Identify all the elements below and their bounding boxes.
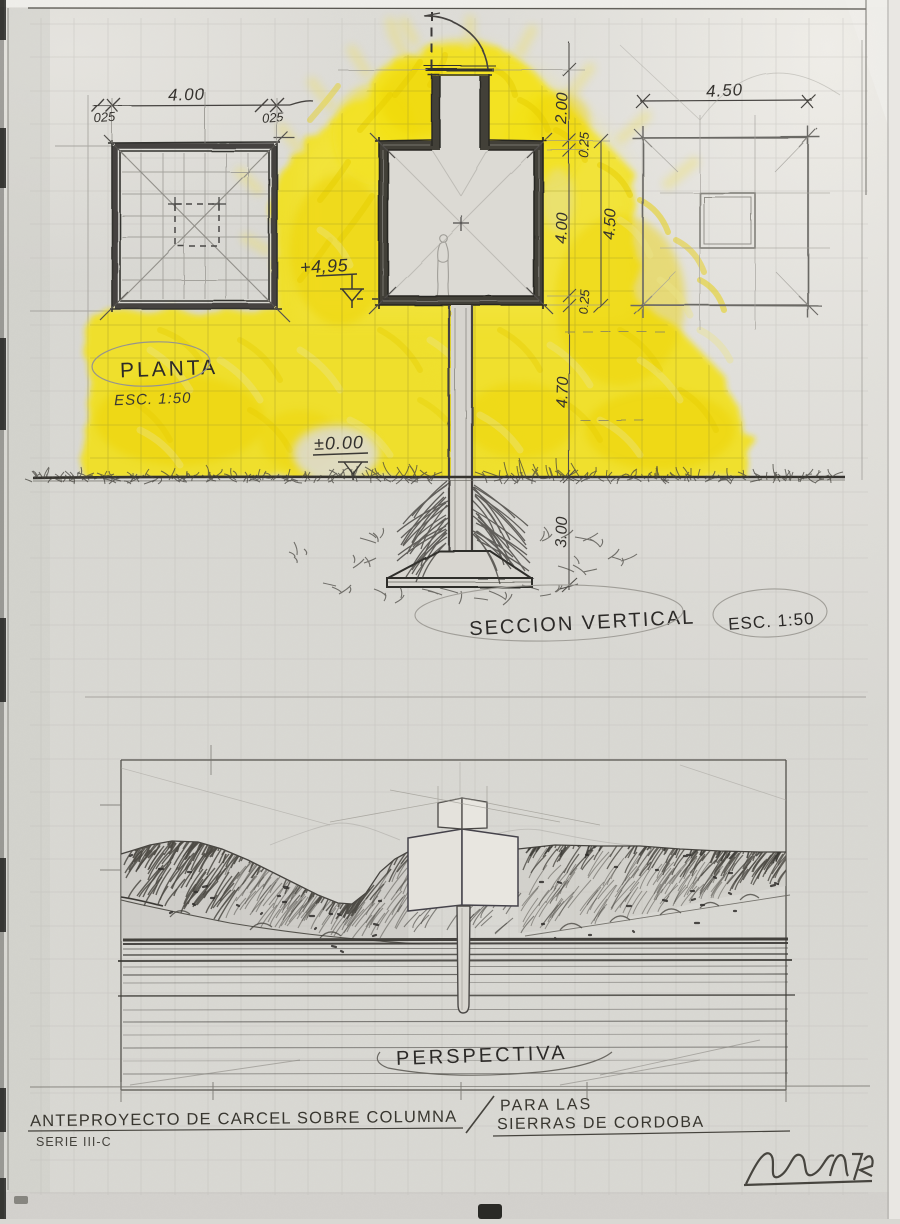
svg-text:0.25: 0.25 [576, 131, 592, 158]
svg-text:025: 025 [94, 109, 117, 126]
svg-text:0.25: 0.25 [576, 288, 592, 315]
svg-text:4.00: 4.00 [168, 84, 206, 104]
svg-text:3.00: 3.00 [553, 516, 571, 548]
svg-text:4.50: 4.50 [601, 208, 620, 240]
svg-text:PLANTA: PLANTA [120, 356, 219, 382]
svg-text:025: 025 [262, 109, 285, 126]
svg-text:ESC. 1:50: ESC. 1:50 [114, 390, 192, 410]
svg-text:±0.00: ±0.00 [314, 432, 365, 454]
svg-text:SIERRAS DE CORDOBA: SIERRAS DE CORDOBA [497, 1114, 705, 1133]
svg-text:4.50: 4.50 [706, 80, 744, 101]
svg-text:4.70: 4.70 [554, 376, 572, 408]
svg-text:SERIE III-C: SERIE III-C [36, 1135, 112, 1149]
svg-text:4.00: 4.00 [553, 212, 572, 244]
svg-text:2.00: 2.00 [553, 92, 572, 125]
svg-text:PARA LAS: PARA LAS [500, 1096, 592, 1115]
